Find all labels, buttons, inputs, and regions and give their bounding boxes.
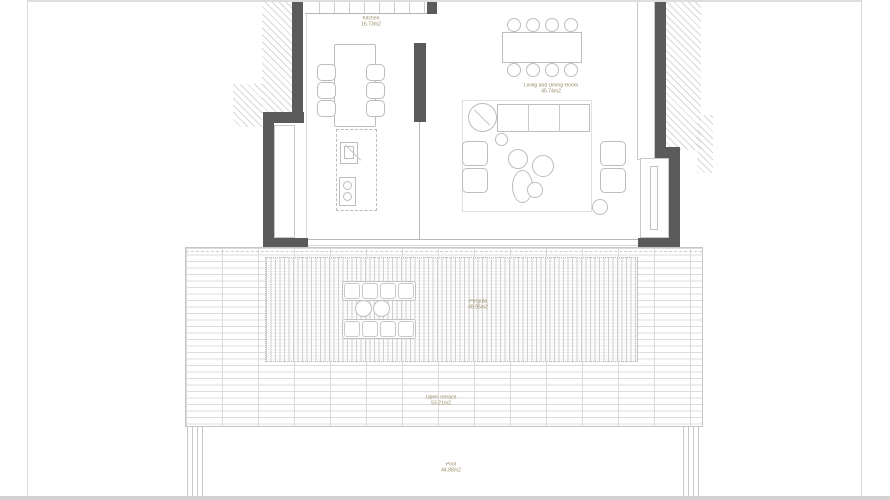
dining-chair [545, 18, 559, 32]
pool-label: Pool 44.88m2 [421, 462, 481, 474]
sheet-right-edge [861, 0, 862, 496]
stove-burner [343, 181, 352, 190]
dining-chair [564, 18, 578, 32]
dining-chair [507, 63, 521, 77]
sofa [497, 104, 590, 132]
island-chair [366, 64, 385, 81]
open-terrace-label: Open Terrace 53.21m2 [411, 395, 471, 407]
dining-chair [526, 18, 540, 32]
hatch-right-upper [666, 0, 701, 150]
hatch-left-lower [233, 84, 262, 127]
island-chair [366, 100, 385, 117]
wall-right-top [655, 0, 666, 151]
living-dining-area: 45.74m2 [512, 89, 590, 95]
outdoor-sofa [342, 281, 416, 301]
hatch-left-upper [262, 0, 292, 113]
armchair [600, 141, 626, 166]
sheet-top-edge [28, 0, 862, 2]
left-closet [274, 125, 295, 238]
pool-wall-left [187, 427, 204, 496]
dining-chair [507, 18, 521, 32]
wall-right-lower [669, 147, 680, 247]
glass-wall-south-outer [307, 239, 638, 240]
island-chair [366, 82, 385, 99]
coffee-table [527, 182, 543, 198]
outdoor-sofa [342, 319, 416, 339]
kitchen-wall-counter [305, 0, 428, 14]
dining-table [502, 32, 582, 63]
dining-chair [526, 63, 540, 77]
wall-left-top [292, 0, 303, 119]
sheet-bottom-edge [0, 496, 890, 500]
hatch-right-lower [697, 115, 713, 173]
outdoor-table [373, 300, 390, 317]
side-table [592, 199, 608, 215]
sliding-door-leaf [650, 166, 658, 230]
floorplan-canvas: Kitchen 16.73m2 Living and Dining Room 4… [0, 0, 890, 500]
armchair [462, 168, 488, 193]
island-chair [317, 100, 336, 117]
glass-wall-south-inner [307, 245, 638, 246]
island-chair [317, 82, 336, 99]
kitchen-label: Kitchen 16.73m2 [341, 16, 401, 28]
dining-chair [545, 63, 559, 77]
wall-left-lower [263, 112, 274, 247]
pergola-area: 49.95m2 [448, 305, 508, 311]
island-chair [317, 64, 336, 81]
wall-mid-partition [414, 43, 426, 122]
wall-bottom-left [263, 238, 308, 247]
dining-chair [564, 63, 578, 77]
right-window-strip [637, 0, 655, 160]
wall-bottom-right [638, 238, 680, 247]
pool-wall-right [683, 427, 700, 496]
coffee-table [532, 155, 554, 177]
sheet-left-edge [27, 0, 28, 496]
living-dining-label: Living and Dining Room 45.74m2 [512, 83, 590, 95]
outdoor-table [355, 300, 372, 317]
kitchen-area: 16.73m2 [341, 22, 401, 28]
side-table [495, 133, 508, 146]
wall-counter-end [427, 0, 437, 14]
coffee-table [508, 149, 528, 169]
armchair [462, 141, 488, 166]
armchair [600, 168, 626, 193]
stove-burner [343, 192, 352, 201]
glass-partition-line [419, 122, 420, 240]
interior-wall-face-line [306, 14, 307, 238]
pergola-label: Pergola 49.95m2 [448, 299, 508, 311]
deck-joint-line [186, 251, 702, 252]
open-terrace-area: 53.21m2 [411, 401, 471, 407]
pool-area: 44.88m2 [421, 468, 481, 474]
